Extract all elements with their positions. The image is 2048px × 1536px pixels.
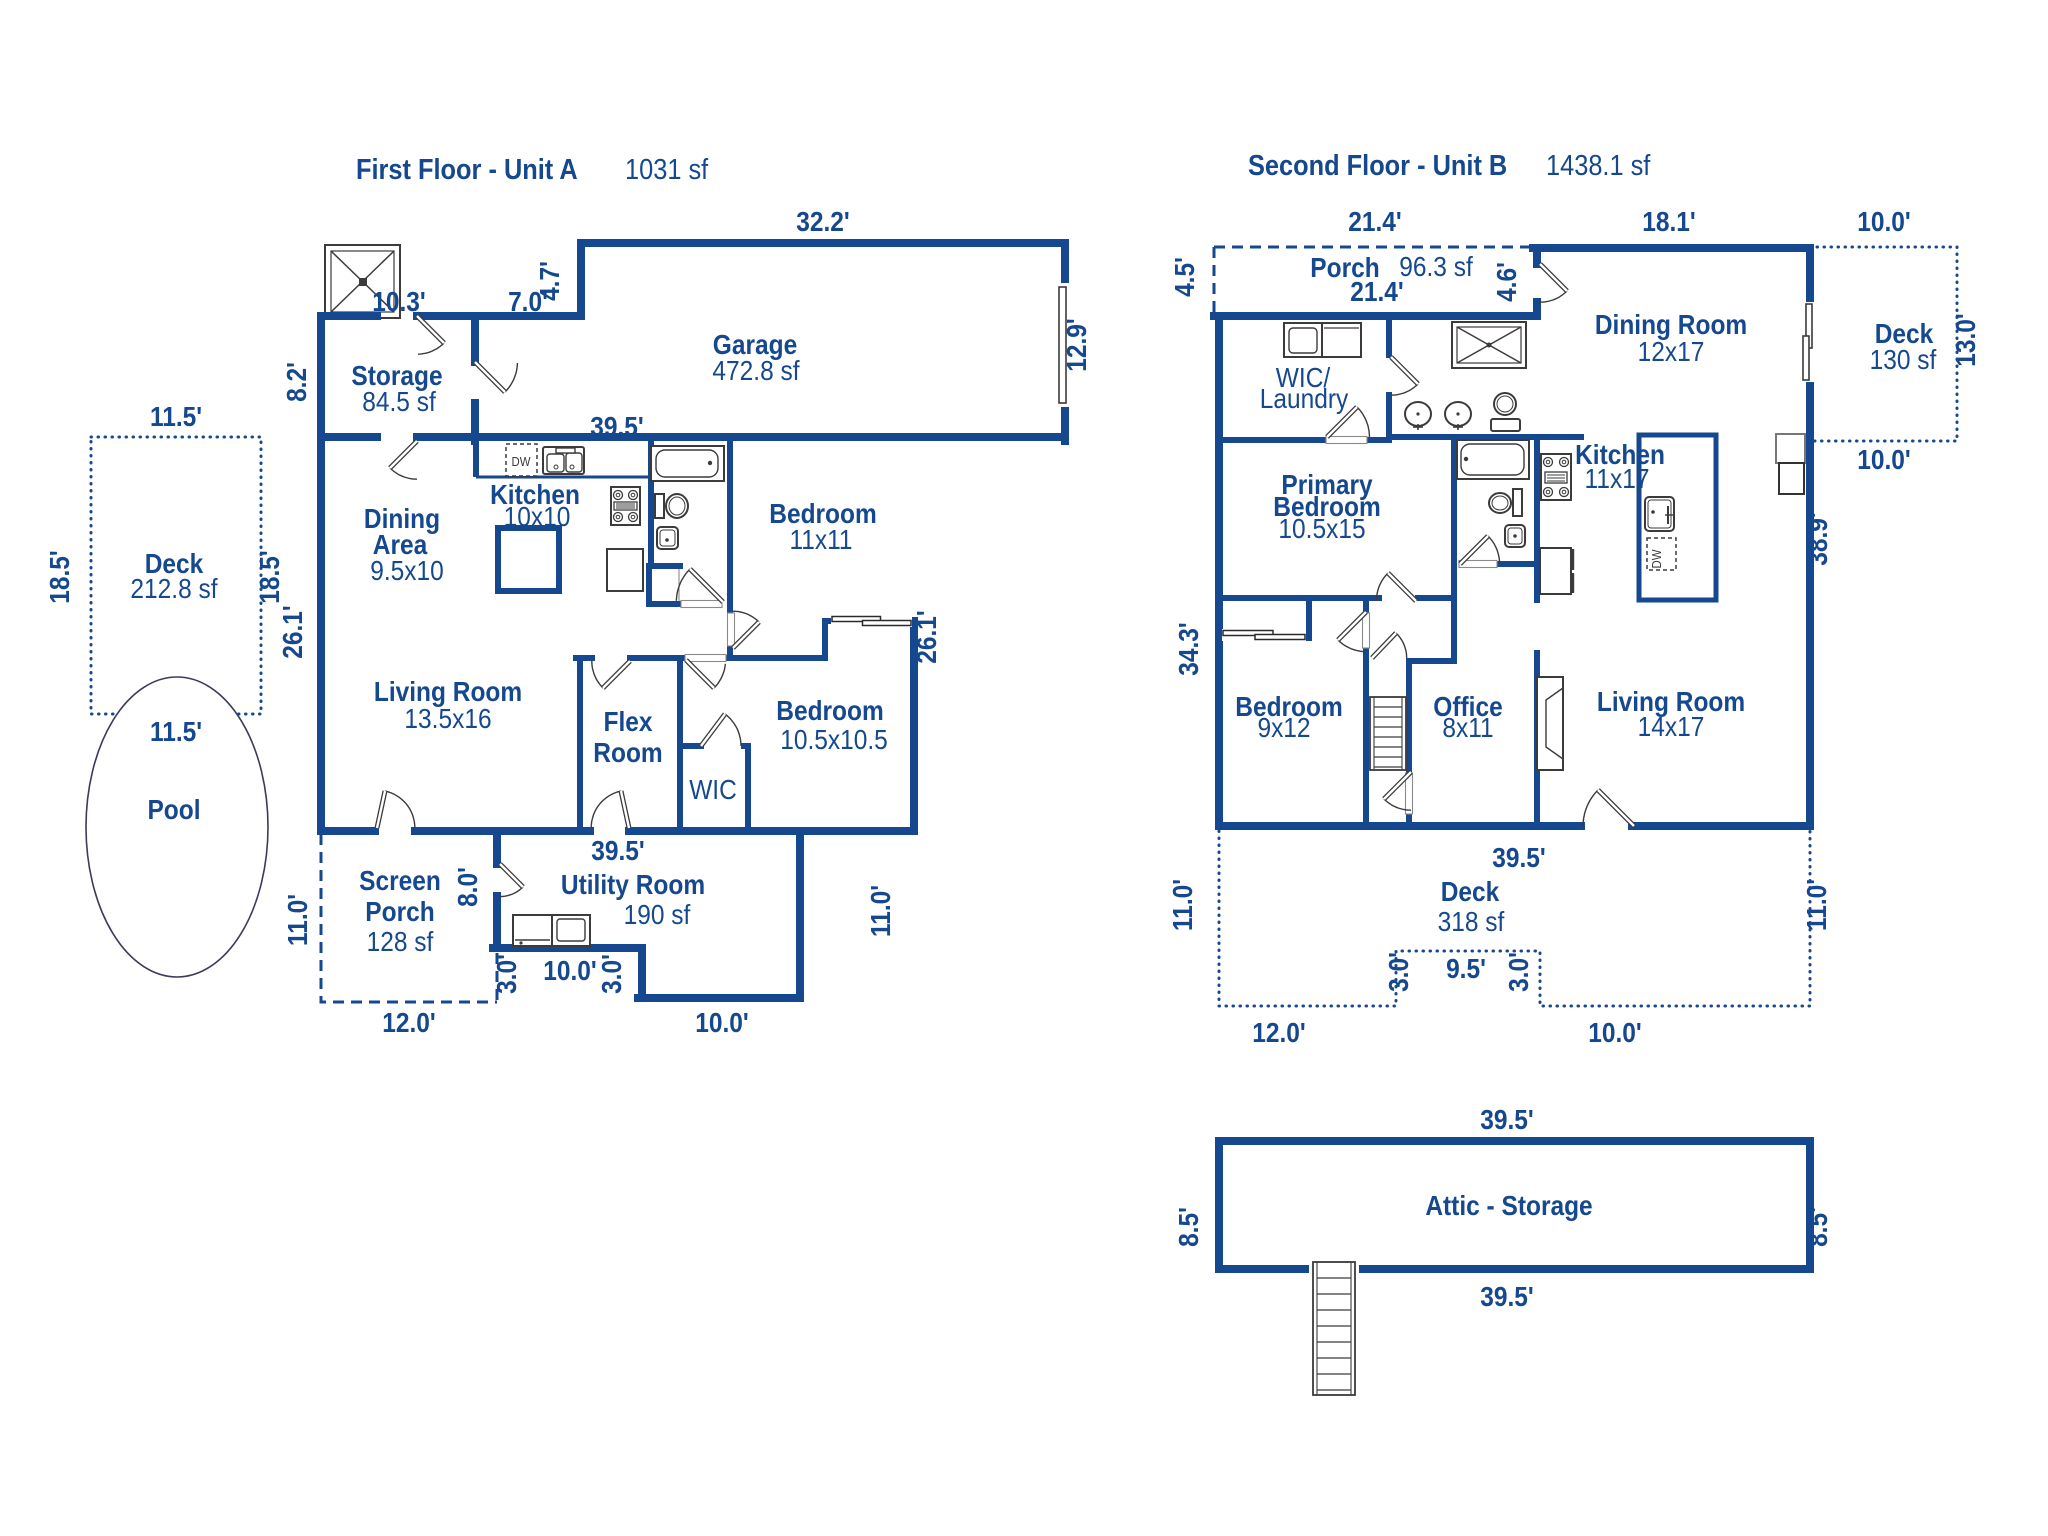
svg-text:84.5 sf: 84.5 sf — [362, 385, 436, 417]
svg-text:39.5': 39.5' — [590, 410, 643, 442]
svg-text:12.0': 12.0' — [1252, 1016, 1305, 1048]
svg-text:38.9': 38.9' — [1801, 512, 1833, 565]
svg-text:3.0': 3.0' — [595, 954, 627, 994]
svg-text:Second Floor - Unit B: Second Floor - Unit B — [1248, 148, 1507, 181]
svg-text:WIC: WIC — [689, 773, 737, 805]
svg-text:26.1': 26.1' — [910, 610, 942, 663]
svg-text:13.0': 13.0' — [1949, 313, 1981, 366]
svg-text:39.5': 39.5' — [1480, 1280, 1533, 1312]
svg-text:Room: Room — [593, 736, 662, 768]
svg-text:8.2': 8.2' — [280, 362, 312, 402]
svg-text:190 sf: 190 sf — [624, 898, 691, 930]
svg-text:26.1': 26.1' — [276, 605, 308, 658]
svg-text:11.5': 11.5' — [150, 400, 202, 432]
svg-text:11.0': 11.0' — [864, 885, 896, 937]
svg-text:10.0': 10.0' — [1857, 205, 1910, 237]
svg-text:3.0': 3.0' — [1502, 952, 1534, 992]
svg-text:12.0': 12.0' — [382, 1006, 435, 1038]
svg-text:18.5': 18.5' — [253, 550, 285, 603]
svg-text:Deck: Deck — [1441, 875, 1500, 907]
svg-text:8.0': 8.0' — [451, 867, 483, 907]
svg-text:12.9': 12.9' — [1060, 318, 1092, 371]
svg-text:9x12: 9x12 — [1257, 711, 1310, 743]
svg-text:Attic - Storage: Attic - Storage — [1425, 1189, 1592, 1221]
svg-text:First Floor - Unit A: First Floor - Unit A — [356, 152, 578, 185]
svg-text:DW: DW — [512, 454, 531, 469]
svg-text:10.0': 10.0' — [1857, 443, 1910, 475]
svg-text:18.1': 18.1' — [1642, 205, 1695, 237]
svg-text:4.6': 4.6' — [1490, 262, 1522, 302]
svg-text:130 sf: 130 sf — [1870, 343, 1937, 375]
svg-text:21.4': 21.4' — [1350, 275, 1403, 307]
svg-text:9.5x10: 9.5x10 — [370, 554, 444, 586]
svg-text:96.3 sf: 96.3 sf — [1399, 250, 1473, 282]
svg-text:Flex: Flex — [603, 705, 652, 737]
svg-text:13.5x16: 13.5x16 — [404, 702, 491, 734]
svg-text:8.5': 8.5' — [1172, 1207, 1204, 1247]
svg-text:Laundry: Laundry — [1260, 382, 1349, 414]
svg-text:32.2': 32.2' — [796, 205, 849, 237]
svg-text:39.5': 39.5' — [1480, 1103, 1533, 1135]
svg-text:8x11: 8x11 — [1442, 711, 1493, 743]
svg-text:18.5': 18.5' — [43, 550, 75, 603]
svg-text:11.0': 11.0' — [281, 894, 313, 946]
svg-text:11.0': 11.0' — [1800, 879, 1832, 931]
svg-text:1031 sf: 1031 sf — [625, 152, 709, 185]
svg-text:11x11: 11x11 — [789, 523, 852, 555]
svg-text:4.5': 4.5' — [1168, 257, 1200, 297]
svg-text:Porch: Porch — [365, 895, 434, 927]
svg-text:Utility Room: Utility Room — [561, 868, 705, 900]
svg-text:1438.1 sf: 1438.1 sf — [1546, 148, 1651, 181]
svg-text:10.0': 10.0' — [1588, 1016, 1641, 1048]
svg-text:3.0': 3.0' — [1382, 952, 1414, 992]
svg-text:318 sf: 318 sf — [1438, 905, 1505, 937]
svg-text:10x10: 10x10 — [504, 500, 571, 532]
svg-text:128 sf: 128 sf — [367, 925, 434, 957]
svg-text:34.3': 34.3' — [1172, 622, 1204, 675]
svg-text:14x17: 14x17 — [1638, 710, 1705, 742]
svg-text:10.5x10.5: 10.5x10.5 — [780, 723, 888, 755]
svg-text:212.8 sf: 212.8 sf — [130, 572, 218, 604]
svg-text:8.5': 8.5' — [1801, 1207, 1833, 1247]
svg-text:11x17: 11x17 — [1585, 462, 1650, 494]
svg-text:10.5x15: 10.5x15 — [1278, 512, 1365, 544]
svg-text:DW: DW — [1649, 549, 1664, 568]
svg-text:9.5': 9.5' — [1446, 952, 1486, 984]
svg-text:21.4': 21.4' — [1348, 205, 1401, 237]
svg-text:3.0': 3.0' — [490, 954, 522, 994]
svg-text:472.8 sf: 472.8 sf — [712, 354, 800, 386]
svg-text:10.0': 10.0' — [695, 1006, 748, 1038]
svg-text:39.5': 39.5' — [591, 834, 644, 866]
svg-text:4.7': 4.7' — [533, 261, 565, 301]
svg-text:12x17: 12x17 — [1638, 335, 1705, 367]
svg-text:Pool: Pool — [147, 793, 200, 825]
svg-text:11.0': 11.0' — [1166, 879, 1198, 931]
svg-text:39.5': 39.5' — [1492, 841, 1545, 873]
svg-text:11.5': 11.5' — [150, 715, 202, 747]
svg-text:Bedroom: Bedroom — [776, 694, 883, 726]
svg-text:10.3': 10.3' — [372, 285, 425, 317]
svg-text:10.0': 10.0' — [543, 954, 596, 986]
svg-text:Screen: Screen — [359, 864, 441, 896]
